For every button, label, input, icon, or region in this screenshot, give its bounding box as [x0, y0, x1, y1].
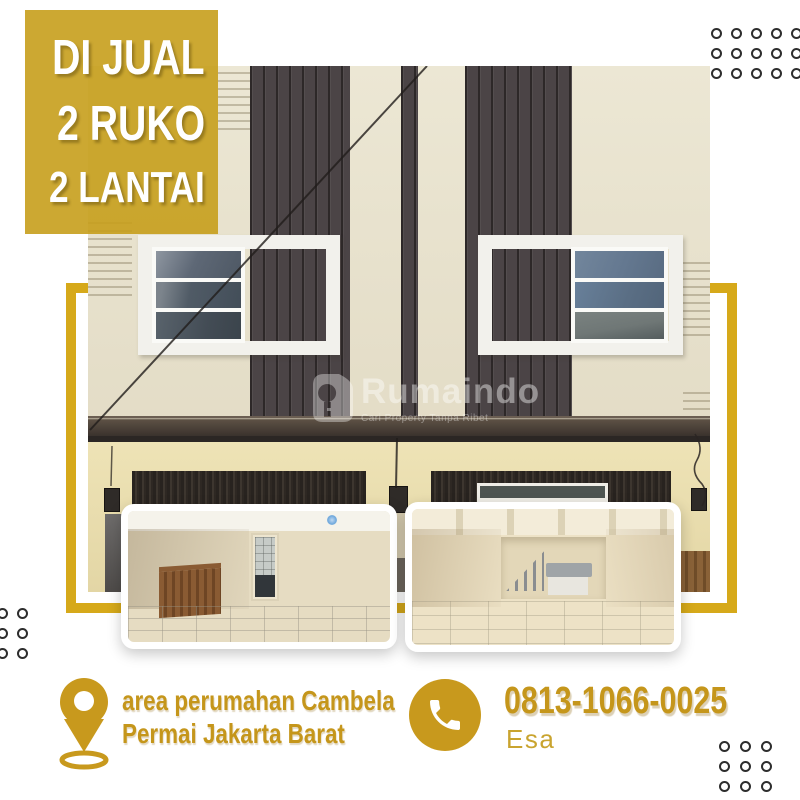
- left-wall-shade: [412, 529, 501, 607]
- watermark: Rumaindo Cari Property Tanpa Ribet: [303, 369, 540, 425]
- ceiling: [128, 511, 390, 531]
- watermark-brand: Rumaindo: [361, 373, 540, 411]
- contact-name: Esa: [506, 724, 555, 755]
- flyer-canvas: Rumaindo Cari Property Tanpa Ribet DI JU…: [0, 0, 800, 800]
- location-line-2: Permai Jakarta Barat: [122, 717, 345, 750]
- dot-grid-top-right: [711, 28, 800, 79]
- tile-floor: [412, 601, 674, 645]
- tile-floor: [128, 606, 390, 642]
- badge-line-1: DI JUAL: [53, 34, 205, 83]
- counter-base: [548, 577, 588, 595]
- counter-top: [546, 563, 592, 577]
- watermark-tagline: Cari Property Tanpa Ribet: [361, 413, 540, 424]
- doorway-tiles: [255, 537, 275, 575]
- badge-line-2: 2 RUKO: [57, 100, 205, 149]
- map-pin-icon: [52, 676, 116, 772]
- phone-icon-circle: [409, 679, 481, 751]
- door-panel: [255, 575, 275, 597]
- dot-grid-bottom-right: [719, 741, 773, 792]
- right-wall-shade: [606, 529, 674, 607]
- location-line-1: area perumahan Cambela: [122, 684, 395, 717]
- house-key-icon: [303, 369, 355, 425]
- phone-number: 0813-1066-0025: [504, 680, 783, 723]
- interior-photo-right: [405, 502, 681, 652]
- interior-photo-left: [121, 504, 397, 649]
- rear-doorway: [251, 533, 279, 601]
- badge-line-3: 2 LANTAI: [49, 166, 205, 210]
- for-sale-badge: DI JUAL 2 RUKO 2 LANTAI: [25, 10, 218, 234]
- dot-grid-bottom-left: [0, 608, 28, 659]
- phone-icon: [425, 695, 465, 735]
- watermark-text: Rumaindo Cari Property Tanpa Ribet: [361, 369, 540, 424]
